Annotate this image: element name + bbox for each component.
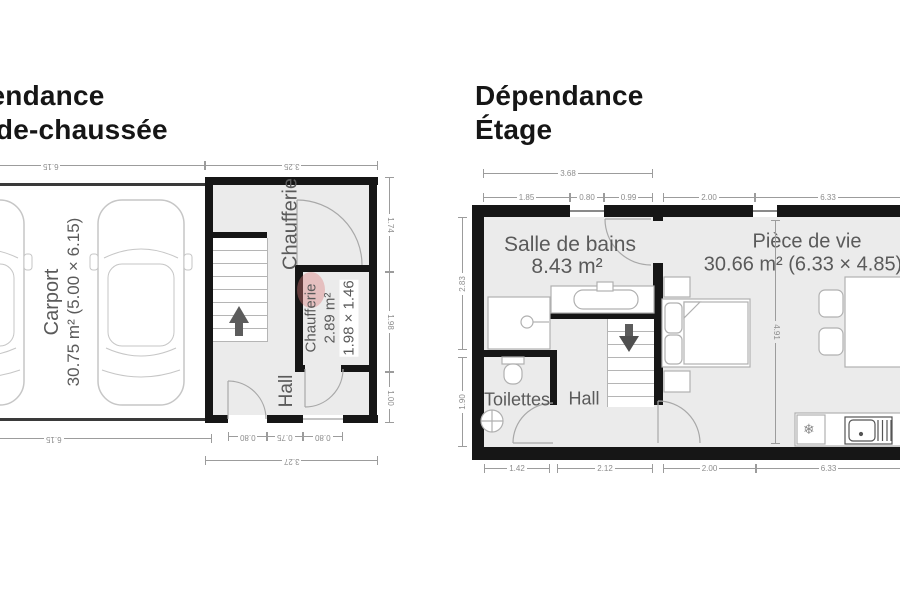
car-left — [0, 200, 32, 405]
dim-top-total: 3.68 — [483, 169, 653, 178]
chaufferie-area: 2.89 m² — [321, 279, 340, 356]
salle-de-bains-name: Salle de bains — [504, 233, 636, 257]
wall — [653, 217, 663, 221]
carport-details: 30.75 m² (5.00 × 6.15) — [63, 218, 85, 387]
wall — [484, 350, 557, 357]
car-right — [90, 200, 192, 405]
wall — [341, 365, 377, 372]
stairs-up-arrow-stem — [235, 322, 243, 336]
dim-top-seg2: 0.80 — [570, 193, 604, 202]
dim-interior-height: 4.91 — [771, 220, 780, 444]
dim-bottom-seg2: 2.12 — [557, 464, 653, 473]
dim-right-middle: 1.98 — [385, 272, 394, 372]
dim-top-seg1: 1.85 — [483, 193, 570, 202]
right-plan-title-line1: Dépendance — [475, 80, 644, 112]
dim-carport-top: 6.15 — [0, 161, 205, 170]
carport-top-edge — [0, 183, 210, 186]
fridge-snowflake-icon: ❄ — [803, 421, 815, 438]
dim-right-upper: 1.74 — [385, 177, 394, 272]
piece-de-vie-name: Pièce de vie — [753, 231, 862, 254]
entry-door-opening — [228, 415, 267, 423]
dim-bottom-pier: 0.75 — [267, 432, 303, 441]
salle-de-bains-area: 8.43 m² — [531, 255, 602, 279]
dim-bottom-total: 3.27 — [205, 456, 378, 465]
left-plan-title-line1: Dépendance — [0, 80, 105, 112]
wall — [369, 177, 377, 423]
hall-etage-label: Hall — [568, 389, 599, 410]
chaufferie-name: Chaufferie — [302, 279, 321, 356]
carport-name: Carport — [41, 218, 63, 387]
window — [303, 415, 343, 423]
wall — [295, 265, 377, 272]
wall — [550, 357, 557, 405]
stairs-down-arrow — [619, 336, 639, 352]
chaufferie-small-label: Chaufferie 2.89 m² 1.98 × 1.46 — [302, 279, 359, 356]
dim-top-seg3: 0.99 — [604, 193, 653, 202]
chaufferie-dims: 1.98 × 1.46 — [340, 279, 359, 356]
dim-bottom-seg3: 2.00 — [663, 464, 756, 473]
dim-bottom-seg4: 6.33 — [756, 464, 900, 473]
wall — [295, 365, 305, 372]
dim-bottom-door: 0.80 — [228, 432, 267, 441]
piece-de-vie-details: 30.66 m² (6.33 × 4.85) — [704, 254, 900, 277]
dim-block-top: 3.25 — [205, 161, 378, 170]
left-plan-title-line2: Rez-de-chaussée — [0, 114, 168, 146]
wall — [653, 263, 663, 405]
stairs-up-arrow — [229, 306, 249, 323]
dim-left-lower: 1.90 — [458, 357, 467, 447]
wall — [205, 177, 213, 423]
floor-plan-canvas: Dépendance Rez-de-chaussée Dépendance Ét… — [0, 0, 900, 600]
hall-rdc-label: Hall — [276, 375, 298, 408]
dim-left-upper: 2.83 — [458, 217, 467, 350]
dim-top-seg4: 2.00 — [663, 193, 755, 202]
window — [570, 205, 604, 217]
carport-label: Carport 30.75 m² (5.00 × 6.15) — [41, 218, 85, 387]
dim-right-lower: 1.00 — [385, 372, 394, 423]
toilettes-label: Toilettes — [484, 390, 550, 411]
dim-bottom-window: 0.80 — [303, 432, 343, 441]
right-plan-title-line2: Étage — [475, 114, 552, 146]
dim-carport-bottom: 6.15 — [0, 434, 212, 443]
carport-bottom-edge — [0, 418, 212, 421]
dim-bottom-seg1: 1.42 — [484, 464, 550, 473]
wall — [550, 312, 663, 319]
chaufferie-room-label: Chaufferie — [280, 178, 303, 270]
dim-top-seg5: 6.33 — [755, 193, 900, 202]
window — [753, 205, 777, 217]
